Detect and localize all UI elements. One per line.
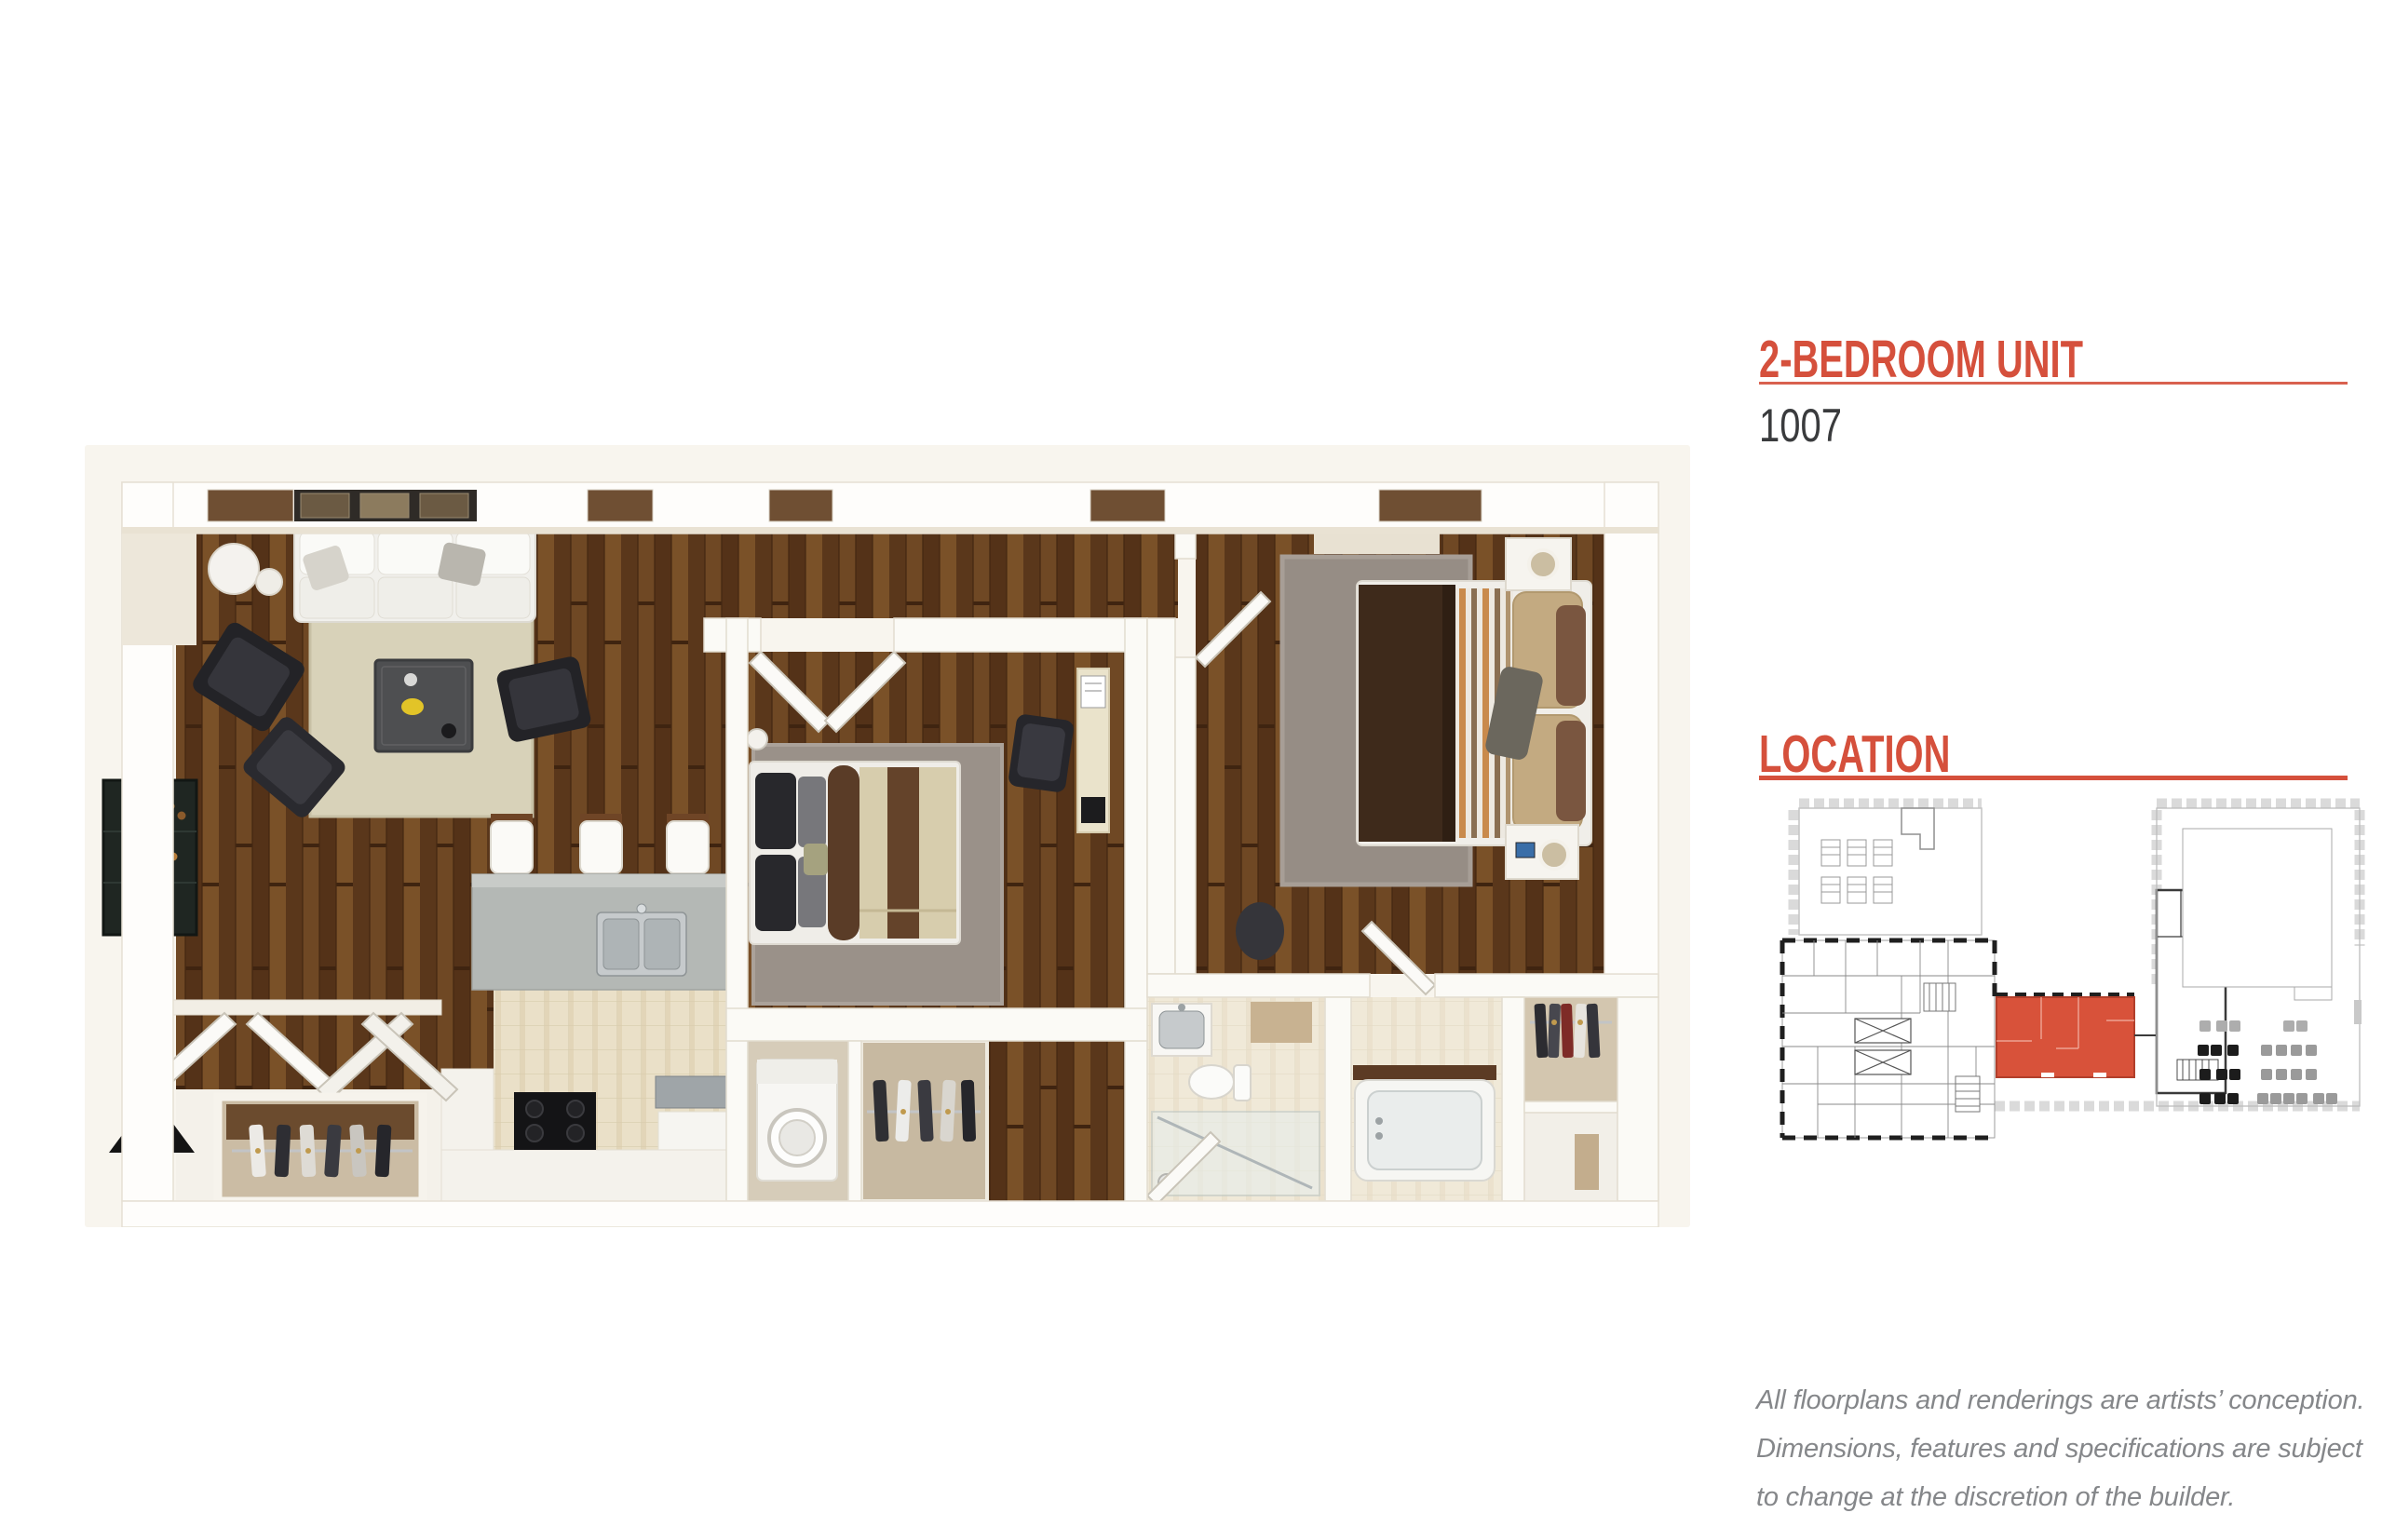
lower-niche xyxy=(1575,1134,1599,1190)
vanity-sink xyxy=(1152,1004,1211,1056)
bar-stool xyxy=(667,814,709,873)
nightstand-bottom xyxy=(1506,825,1578,879)
bedroom1-console xyxy=(1077,669,1109,832)
lamp xyxy=(1540,841,1568,869)
kitchen-island xyxy=(472,874,727,990)
bedroom1-chair xyxy=(1008,713,1075,793)
unit-floorplan xyxy=(85,445,1690,1227)
counter-return xyxy=(658,1112,727,1150)
wardrobe xyxy=(861,1041,987,1201)
location-map xyxy=(1762,797,2373,1222)
double-sink xyxy=(597,904,686,976)
window-view xyxy=(294,490,477,521)
nightstand-top xyxy=(1506,538,1571,590)
location-heading: LOCATION xyxy=(1759,728,2032,781)
disclaimer-line: Dimensions, features and specifications … xyxy=(1756,1425,2364,1473)
entry-closet xyxy=(218,1097,423,1201)
counter-appliance xyxy=(656,1076,727,1108)
disclaimer-line: All floorplans and renderings are artist… xyxy=(1756,1376,2364,1425)
unit-type-heading: 2-BEDROOM UNIT xyxy=(1759,333,2222,386)
main-building xyxy=(1782,940,1995,1138)
bar-stool xyxy=(580,814,622,873)
wing-stair xyxy=(2177,1060,2218,1080)
bar-stool xyxy=(491,814,533,873)
disclaimer-line: to change at the discretion of the build… xyxy=(1756,1473,2364,1521)
lamp xyxy=(1529,550,1557,578)
location-heading-text: LOCATION xyxy=(1759,728,1950,781)
photo-frame xyxy=(1516,843,1535,858)
unit-heading-rule xyxy=(1759,382,2348,385)
bathtub xyxy=(1355,1080,1495,1181)
disclaimer: All floorplans and renderings are artist… xyxy=(1756,1376,2364,1521)
unit-type-heading-text: 2-BEDROOM UNIT xyxy=(1759,333,2083,386)
range xyxy=(514,1092,596,1150)
highlighted-unit xyxy=(1996,994,2134,1077)
bedroom1-bed xyxy=(750,762,960,944)
linen-lower-floor xyxy=(1524,1109,1617,1201)
tub-deck xyxy=(1353,1065,1496,1080)
toilet xyxy=(1189,1065,1251,1101)
hallway-floor xyxy=(987,1041,1147,1201)
amenity-room xyxy=(1799,808,1982,935)
faucet xyxy=(637,904,646,913)
location-heading-rule xyxy=(1759,776,2348,780)
yellow-decor xyxy=(401,698,424,715)
unit-number: 1007 xyxy=(1759,402,1862,449)
flyer-page: 2-BEDROOM UNIT 1007 LOCATION xyxy=(0,0,2382,1540)
bedroom2-bed xyxy=(1357,581,1591,845)
bedroom1-lamp xyxy=(747,729,767,750)
bathroom-2 xyxy=(1353,1065,1496,1181)
corridor-floor xyxy=(726,534,1178,618)
laptop xyxy=(1081,797,1105,823)
coffee-table xyxy=(375,660,472,751)
side-table xyxy=(209,544,259,594)
bath-niche xyxy=(1251,1002,1312,1043)
bedroom2-stool xyxy=(1236,902,1284,960)
side-table-small xyxy=(256,569,282,595)
laundry-closet xyxy=(757,1041,987,1201)
counter-band xyxy=(441,1150,727,1201)
sofa xyxy=(294,527,535,622)
